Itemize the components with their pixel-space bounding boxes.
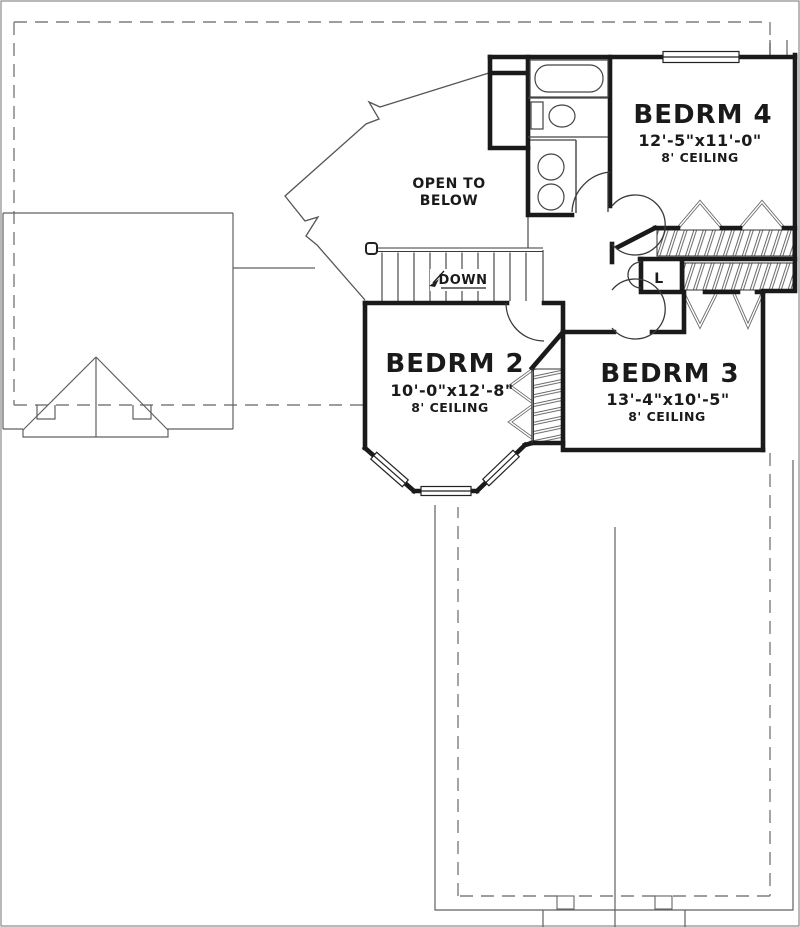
- bedrm4-dims: 12'-5"x11'-0": [638, 131, 761, 150]
- linen-closet-label: L: [654, 271, 663, 287]
- bay-window-center: [421, 487, 471, 496]
- open-to-below-label-2: BELOW: [420, 193, 479, 209]
- bedrm4-window: [663, 52, 739, 63]
- roof-outline-dashed: [14, 22, 770, 896]
- open-to-below-label-1: OPEN TO: [412, 176, 485, 192]
- sink: [549, 105, 575, 127]
- room-labels: OPEN TO BELOW BEDRM 4 12'-5"x11'-0" 8' C…: [385, 100, 772, 424]
- bedrm2-door: [506, 303, 544, 341]
- stair-direction: DOWN: [429, 269, 492, 291]
- bedrm2-ceiling: 8' CEILING: [411, 400, 489, 415]
- bay-window-right: [483, 450, 520, 486]
- floor-plan-svg: DOWN OPEN TO BELOW BEDRM 4 12'-5"x11'-0"…: [0, 0, 800, 927]
- bathroom: [528, 60, 608, 210]
- bedrm2-name: BEDRM 2: [385, 349, 524, 379]
- bath-door: [572, 172, 610, 212]
- bedrm3-ceiling: 8' CEILING: [628, 409, 706, 424]
- bedrm3-closet-rod: [684, 263, 793, 290]
- toilet: [538, 154, 564, 180]
- down-label: DOWN: [438, 273, 487, 288]
- bathtub-basin: [535, 65, 603, 92]
- bay-window-left: [371, 452, 408, 486]
- floor-plan: DOWN OPEN TO BELOW BEDRM 4 12'-5"x11'-0"…: [0, 0, 800, 927]
- bedrm2-dims: 10'-0"x12'-8": [390, 381, 513, 400]
- bedrm3-name: BEDRM 3: [600, 359, 739, 389]
- bedrm4-name: BEDRM 4: [633, 100, 772, 130]
- toilet-bowl: [538, 184, 564, 210]
- stair-newel-post: [366, 243, 377, 254]
- bedrm3-dims: 13'-4"x10'-5": [606, 390, 729, 409]
- bedrm4-closet-rod: [657, 230, 793, 256]
- bedrm4-ceiling: 8' CEILING: [661, 150, 739, 165]
- bedrm2-closet-rod: [534, 369, 562, 442]
- vanity-counter: [531, 102, 543, 129]
